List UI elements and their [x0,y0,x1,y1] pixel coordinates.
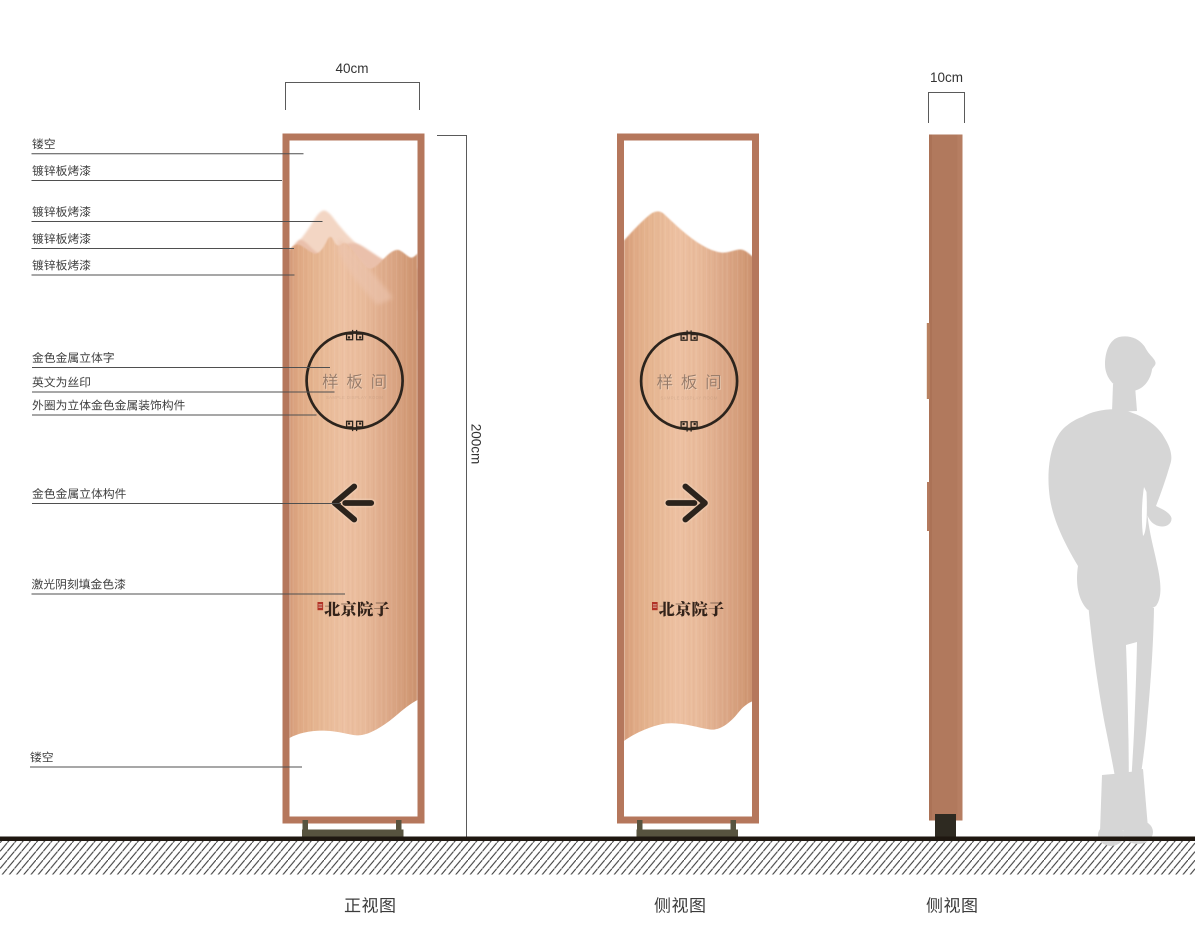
svg-text:10cm: 10cm [930,70,963,85]
svg-text:40cm: 40cm [335,61,368,76]
svg-text:SAMPLE DISPLAY ROOM: SAMPLE DISPLAY ROOM [660,396,717,401]
svg-text:SAMPLE DISPLAY ROOM: SAMPLE DISPLAY ROOM [326,395,383,400]
svg-text:200cm: 200cm [469,424,484,465]
